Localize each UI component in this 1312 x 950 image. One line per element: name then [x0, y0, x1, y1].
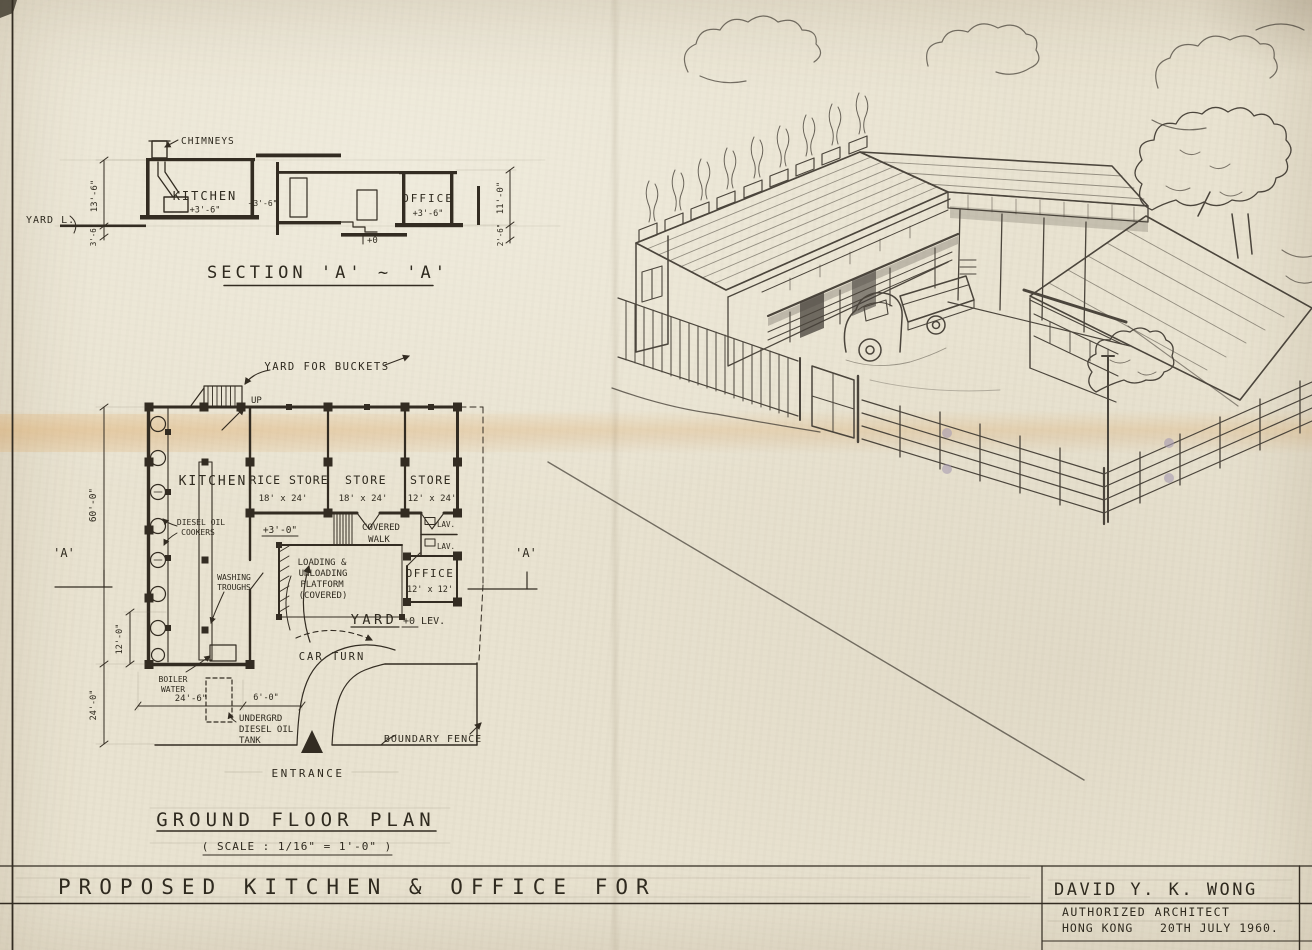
section-dim-left	[96, 157, 146, 240]
ground-lines	[548, 380, 1084, 780]
plan-boiler-line1: BOILER	[159, 675, 188, 684]
plan-store2-label: STORE	[410, 473, 452, 487]
section-mid-level: +3'-6"	[249, 199, 278, 208]
section-yard-label: YARD L.	[26, 215, 75, 226]
plan-kitchen-label: KITCHEN	[179, 474, 248, 489]
title-block: PROPOSED KITCHEN & OFFICE FOR DAVID Y. K…	[58, 875, 1279, 935]
architect-credential: AUTHORIZED ARCHITECT	[1062, 905, 1230, 919]
plan-cooker-circles	[151, 417, 166, 662]
plan-boundary-fence-label: BOUNDARY FENCE	[384, 734, 482, 745]
paper-spots	[942, 428, 1174, 483]
plan-entrance-label: ENTRANCE	[272, 767, 345, 780]
chimney-smoke	[646, 93, 868, 222]
plan-tank-line3: TANK	[239, 736, 261, 746]
plan-car-turn-label: CAR TURN	[299, 651, 366, 663]
store-wing	[1024, 216, 1312, 406]
section-boundary-wall	[477, 186, 480, 225]
plan-up-label: UP	[251, 396, 262, 406]
plan-marker-a-left: 'A'	[53, 546, 75, 560]
plan-store2-size: 12' x 24'	[408, 494, 457, 504]
plan-platform-line4: (COVERED)	[299, 591, 348, 601]
plan-scale-note: ( SCALE : 1/16" = 1'-0" )	[202, 840, 393, 853]
plan-dim-12: 12'-0"	[115, 624, 125, 655]
section-door-2	[357, 190, 377, 220]
clouds	[684, 16, 1304, 130]
section-door-1	[290, 178, 307, 217]
plan-entrance-marker	[301, 730, 323, 753]
section-kitchen-label: KITCHEN	[173, 189, 238, 203]
perspective-sketch	[548, 16, 1312, 780]
plan-platform-level: +3'-0"	[263, 525, 297, 536]
plan-diesel-cookers-line2: COOKERS	[181, 528, 215, 537]
plan-marker-a-right: 'A'	[515, 546, 537, 560]
section-aa-drawing: CHIMNEYS KITCHEN +3'-6" +3'-6" OFFICE +3…	[26, 136, 560, 286]
plan-office-label: OFFICE	[406, 567, 455, 580]
section-office-roof	[399, 171, 457, 174]
plan-yard-for-buckets-label: YARD FOR BUCKETS	[264, 361, 389, 373]
plan-office-size: 12' x 12'	[407, 585, 453, 595]
plan-dim-24h: 24'-6"	[175, 694, 208, 704]
section-kitchen-floor-slab	[140, 215, 259, 220]
plan-tank-line2: DIESEL OIL	[239, 725, 293, 735]
section-canopy-slab	[256, 154, 341, 158]
architect-place: HONG KONG	[1062, 921, 1133, 935]
plan-tank	[206, 678, 232, 722]
kitchen-wing	[636, 152, 976, 366]
plan-lav1-label: LAV.	[437, 520, 455, 529]
plan-walk-steps	[334, 514, 352, 544]
section-chimneys-label: CHIMNEYS	[181, 136, 235, 147]
plan-dim-60: 60'-0"	[88, 488, 99, 522]
plan-section-markers	[55, 570, 537, 589]
plan-dim-24v: 24'-0"	[89, 690, 99, 721]
plan-covered-walk-line2: WALK	[368, 535, 390, 545]
plan-rice-store-label: RICE STORE	[249, 473, 328, 487]
architect-name: DAVID Y. K. WONG	[1054, 880, 1258, 900]
section-dim-left-small-text: 3'-6"	[89, 224, 98, 247]
plan-tank-line1: UNDERGRD	[239, 714, 282, 724]
gate	[812, 366, 858, 442]
section-office-floor	[395, 223, 463, 227]
plan-store1-label: STORE	[345, 473, 387, 487]
plan-yard-label: YARD	[351, 612, 398, 628]
drawing-sheet: CHIMNEYS KITCHEN +3'-6" +3'-6" OFFICE +3…	[0, 0, 1312, 950]
section-title: SECTION 'A' ~ 'A'	[207, 263, 449, 283]
trees	[1088, 107, 1312, 392]
plan-rice-store-size: 18' x 24'	[259, 494, 308, 504]
plan-washing-troughs-line1: WASHING	[217, 573, 251, 582]
plan-dim-6: 6'-0"	[253, 693, 279, 703]
section-dim-left-text: 13'-6"	[90, 180, 100, 213]
plan-covered-walk-line1: COVERED	[362, 523, 400, 533]
plan-yard-level: +0 LEV.	[403, 616, 445, 627]
plan-title: GROUND FLOOR PLAN	[156, 809, 435, 831]
section-dim-right-text: 11'-0"	[496, 182, 506, 215]
plan-diesel-cookers-line1: DIESEL OIL	[177, 518, 225, 527]
architect-date: 20TH JULY 1960.	[1160, 921, 1279, 935]
plan-boiler-line2: WATER	[161, 685, 185, 694]
ground-floor-plan: YARD FOR BUCKETS UP KITCHEN RICE STORE 1…	[53, 356, 537, 855]
plan-boiler	[210, 645, 236, 661]
plan-platform-line1: LOADING &	[298, 558, 347, 568]
section-dim-right	[456, 167, 516, 243]
section-datum-label: +0	[367, 236, 378, 246]
plan-lav2-label: LAV.	[437, 542, 455, 551]
section-steps	[341, 222, 377, 232]
plan-platform-line3: PLATFORM	[300, 580, 344, 590]
plan-platform-line2: UNLOADING	[299, 569, 348, 579]
project-title: PROPOSED KITCHEN & OFFICE FOR	[58, 875, 657, 899]
fence-front	[862, 381, 1312, 524]
section-kitchen-level: +3'-6"	[190, 206, 221, 216]
plan-store1-size: 18' x 24'	[339, 494, 388, 504]
drawing-canvas: CHIMNEYS KITCHEN +3'-6" +3'-6" OFFICE +3…	[0, 0, 1312, 950]
section-dim-right-small-text: 2'-6"	[496, 224, 505, 247]
section-office-level: +3'-6"	[413, 209, 444, 219]
plan-washing-troughs-line2: TROUGHS	[217, 583, 251, 592]
chimney-row	[639, 93, 868, 242]
section-office-label: OFFICE	[402, 192, 454, 205]
